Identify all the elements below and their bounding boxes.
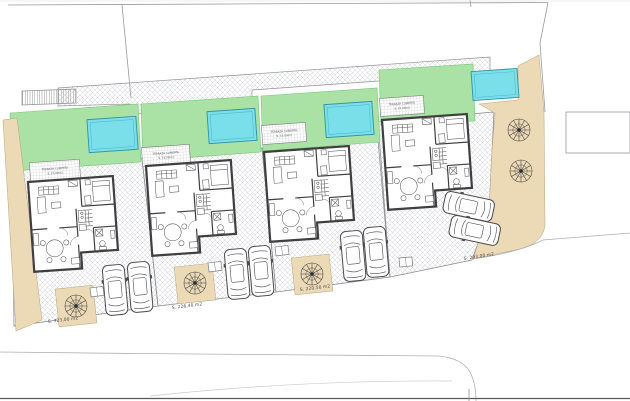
site-plan-drawing: TERRAZA CUBIERTA S. 15,00m2 TERRAZA CUBI… bbox=[0, 0, 630, 401]
tree-icon bbox=[184, 272, 206, 294]
pool-3 bbox=[324, 101, 374, 137]
terrace-box-3: TERRAZA CUBIERTA S. 15,00m2 bbox=[261, 122, 306, 144]
pool-2 bbox=[207, 108, 257, 143]
car bbox=[223, 248, 251, 300]
pool-1 bbox=[87, 116, 138, 152]
tree-icon bbox=[510, 160, 532, 182]
car bbox=[247, 245, 275, 297]
tree-icon bbox=[301, 263, 323, 285]
tree-icon bbox=[508, 119, 530, 141]
tree-icon bbox=[65, 295, 87, 317]
car bbox=[126, 261, 154, 313]
neighbor-building bbox=[566, 112, 630, 153]
top-boundary-line bbox=[8, 3, 548, 6]
car bbox=[101, 264, 129, 316]
terrace-box-4: TERRAZA CUBIERTA S. 15,00m2 bbox=[379, 95, 424, 116]
street-lower-edge bbox=[0, 352, 476, 401]
pool-4 bbox=[471, 68, 519, 100]
street-faint-kerb bbox=[150, 381, 452, 396]
meter-box bbox=[275, 245, 289, 256]
pavement-ladder-strip bbox=[22, 89, 76, 105]
meter-box bbox=[208, 261, 222, 272]
car bbox=[339, 230, 367, 282]
meter-box bbox=[399, 257, 413, 267]
car bbox=[362, 226, 390, 278]
meter-box bbox=[90, 286, 104, 297]
site-plan-page: TERRAZA CUBIERTA S. 15,00m2 TERRAZA CUBI… bbox=[0, 0, 630, 401]
